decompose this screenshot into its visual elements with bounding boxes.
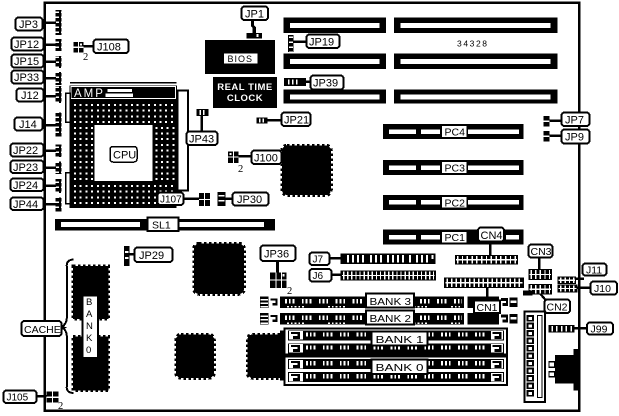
svg-text:PC4: PC4 [445,127,466,139]
svg-text:BANK 3: BANK 3 [370,296,412,308]
svg-text:JP9: JP9 [565,132,584,144]
svg-text:JP3: JP3 [19,19,38,31]
svg-text:CN2: CN2 [547,302,568,314]
svg-text:2: 2 [58,401,63,412]
svg-text:JP19: JP19 [309,37,334,49]
svg-text:JP21: JP21 [284,115,309,127]
svg-text:34328: 34328 [457,39,489,49]
svg-text:CN1: CN1 [477,302,498,314]
svg-text:JP39: JP39 [313,78,338,90]
svg-text:J99: J99 [591,324,608,336]
svg-text:PC2: PC2 [445,197,466,209]
svg-text:N: N [86,321,93,332]
svg-text:J10: J10 [594,283,611,295]
svg-text:J7: J7 [313,255,324,266]
svg-text:BANK 0: BANK 0 [376,362,424,374]
svg-text:J108: J108 [97,42,121,54]
svg-text:CPU: CPU [113,150,136,162]
svg-text:JP24: JP24 [13,180,38,192]
svg-text:B: B [86,297,92,308]
svg-text:CN3: CN3 [531,246,552,258]
svg-text:JP29: JP29 [139,250,164,262]
svg-text:J105: J105 [7,393,29,404]
svg-text:JP23: JP23 [13,162,38,174]
svg-text:J107: J107 [160,195,182,206]
svg-text:JP33: JP33 [14,72,39,84]
svg-text:REAL TIME: REAL TIME [217,82,273,93]
svg-text:J6: J6 [313,271,324,282]
svg-text:JP43: JP43 [189,134,214,146]
svg-text:2: 2 [238,164,243,175]
svg-text:J11: J11 [586,265,602,277]
svg-text:2: 2 [287,286,292,297]
svg-text:JP22: JP22 [13,145,38,157]
svg-text:J14: J14 [19,119,37,131]
svg-text:0: 0 [86,345,91,356]
svg-text:BANK 2: BANK 2 [370,313,412,325]
svg-text:JP12: JP12 [14,39,39,51]
svg-text:CACHE: CACHE [24,324,61,336]
svg-text:BIOS: BIOS [228,54,254,64]
svg-text:JP1: JP1 [245,9,264,21]
svg-text:JP30: JP30 [237,194,262,206]
svg-text:SL1: SL1 [152,220,171,232]
svg-text:AMP: AMP [74,88,105,100]
svg-text:JP7: JP7 [565,115,584,127]
svg-text:J12: J12 [21,90,39,102]
svg-text:CLOCK: CLOCK [227,93,263,104]
svg-text:A: A [86,309,93,320]
svg-text:J100: J100 [254,153,278,165]
svg-text:BANK 1: BANK 1 [376,334,424,346]
svg-text:JP15: JP15 [14,56,39,68]
svg-text:PC3: PC3 [445,163,466,175]
svg-text:PC1: PC1 [445,232,466,244]
svg-text:K: K [86,333,93,344]
svg-text:JP36: JP36 [264,249,289,261]
svg-text:CN4: CN4 [481,230,503,242]
svg-text:2: 2 [83,52,88,63]
svg-text:JP44: JP44 [13,199,38,211]
